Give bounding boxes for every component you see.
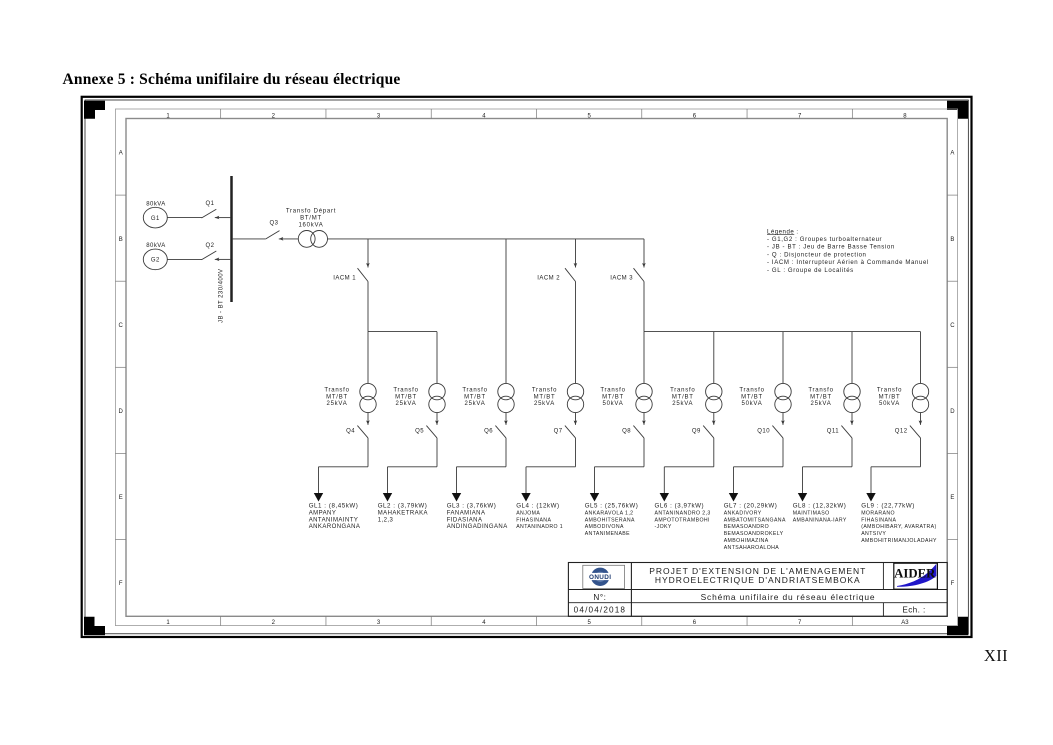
svg-text:B: B [950, 237, 954, 243]
svg-text:AMBANINANA-IARY: AMBANINANA-IARY [793, 517, 847, 523]
svg-text:Transfo: Transfo [808, 388, 833, 394]
svg-text:GL6 : (3,97kW): GL6 : (3,97kW) [655, 503, 705, 510]
svg-text:FIHASINANA: FIHASINANA [516, 517, 551, 523]
svg-text:IACM 2: IACM 2 [537, 275, 560, 281]
svg-text:MAHAKETRAKA: MAHAKETRAKA [378, 510, 428, 516]
svg-text:Transfo: Transfo [324, 388, 349, 394]
svg-text:25kVA: 25kVA [396, 401, 417, 407]
svg-text:F: F [951, 581, 955, 587]
svg-text:Q9: Q9 [692, 428, 701, 434]
svg-text:50kVA: 50kVA [879, 401, 900, 407]
svg-text:Q1: Q1 [206, 201, 215, 207]
svg-text:ANDINGADINGANA: ANDINGADINGANA [447, 524, 508, 530]
svg-text:ANKARAVOLA 1,2: ANKARAVOLA 1,2 [585, 510, 634, 516]
svg-text:ANTANIMAINTY: ANTANIMAINTY [309, 517, 359, 523]
svg-text:MT/BT: MT/BT [395, 394, 417, 400]
svg-text:ANTANINADRO 1: ANTANINADRO 1 [516, 524, 563, 530]
svg-text:BEMASOANDRO: BEMASOANDRO [724, 524, 769, 530]
svg-text:MT/BT: MT/BT [741, 394, 763, 400]
svg-text:25kVA: 25kVA [465, 401, 486, 407]
svg-text:ANKADIVORY: ANKADIVORY [724, 510, 762, 516]
svg-text:- IACM : Interrupteur Aérien à: - IACM : Interrupteur Aérien à Commande … [767, 260, 929, 266]
svg-text:MT/BT: MT/BT [672, 394, 694, 400]
svg-text:Annexe 5 : Schéma unifilaire d: Annexe 5 : Schéma unifilaire du réseau é… [63, 71, 401, 88]
svg-text:AMBOHITRIMANJOLADAHY: AMBOHITRIMANJOLADAHY [861, 538, 937, 544]
svg-text:Q11: Q11 [827, 428, 839, 434]
svg-text:Schéma unifilaire du réseau él: Schéma unifilaire du réseau électrique [701, 592, 876, 602]
svg-text:GL1 : (8,45kW): GL1 : (8,45kW) [309, 503, 359, 510]
svg-text:G2: G2 [151, 258, 160, 264]
svg-text:80kVA: 80kVA [146, 201, 165, 207]
svg-text:ANTSIVY: ANTSIVY [861, 531, 886, 537]
svg-text:MT/BT: MT/BT [810, 394, 832, 400]
svg-text:Q2: Q2 [206, 243, 215, 249]
svg-text:Transfo: Transfo [600, 388, 625, 394]
svg-text:Transfo Départ: Transfo Départ [286, 209, 336, 215]
svg-text:FIHASINANA: FIHASINANA [861, 517, 896, 523]
svg-text:ANTANINANDRO 2,3: ANTANINANDRO 2,3 [655, 510, 711, 516]
svg-text:MT/BT: MT/BT [879, 394, 901, 400]
svg-text:Légende :: Légende : [767, 228, 799, 235]
svg-text:Ech. :: Ech. : [902, 606, 925, 615]
svg-text:Transfo: Transfo [462, 388, 487, 394]
svg-text:IACM 1: IACM 1 [333, 275, 356, 281]
svg-text:- G1,G2 : Groupes turboalterna: - G1,G2 : Groupes turboalternateur [767, 237, 882, 243]
svg-text:Transfo: Transfo [393, 388, 418, 394]
svg-text:MT/BT: MT/BT [464, 394, 486, 400]
svg-text:BT/MT: BT/MT [300, 216, 322, 222]
svg-text:AMPANY: AMPANY [309, 510, 337, 516]
svg-text:FANAMIANA: FANAMIANA [447, 510, 486, 516]
svg-text:IACM 3: IACM 3 [610, 275, 633, 281]
svg-text:- Q : Disjoncteur de protectio: - Q : Disjoncteur de protection [767, 252, 867, 258]
svg-text:- JB - BT : Jeu de Barre Basse: - JB - BT : Jeu de Barre Basse Tension [767, 245, 895, 251]
svg-text:D: D [119, 409, 124, 415]
svg-text:C: C [119, 323, 124, 329]
svg-text:N°:: N°: [593, 593, 606, 602]
svg-text:GL8 : (12,32kW): GL8 : (12,32kW) [793, 503, 847, 510]
svg-text:Q4: Q4 [346, 428, 355, 434]
svg-text:AMBATOMITSANGANA: AMBATOMITSANGANA [724, 517, 786, 523]
svg-text:50kVA: 50kVA [742, 401, 763, 407]
svg-text:25kVA: 25kVA [327, 401, 348, 407]
svg-text:Q12: Q12 [895, 428, 908, 434]
svg-text:50kVA: 50kVA [603, 401, 624, 407]
svg-text:A3: A3 [901, 620, 909, 626]
svg-text:Q7: Q7 [554, 428, 563, 434]
svg-text:(AMBOHIBARY, AVARATRA): (AMBOHIBARY, AVARATRA) [861, 524, 936, 530]
svg-text:B: B [119, 237, 123, 243]
svg-text:HYDROELECTRIQUE D'ANDRIATSEMBO: HYDROELECTRIQUE D'ANDRIATSEMBOKA [655, 575, 861, 585]
svg-text:25kVA: 25kVA [534, 401, 555, 407]
svg-text:MAINTIMASO: MAINTIMASO [793, 510, 830, 516]
svg-text:G1: G1 [151, 216, 160, 222]
svg-text:C: C [950, 323, 955, 329]
svg-text:BEMASOANDROKELY: BEMASOANDROKELY [724, 531, 784, 537]
svg-text:GL7 : (20,29kW): GL7 : (20,29kW) [724, 503, 778, 510]
svg-text:ANJOMA: ANJOMA [516, 510, 540, 516]
svg-text:E: E [119, 495, 123, 501]
svg-text:ANTANIMENABE: ANTANIMENABE [585, 531, 630, 537]
svg-text:AMPOTOTRAMBOHI: AMPOTOTRAMBOHI [655, 517, 710, 523]
svg-text:25kVA: 25kVA [811, 401, 832, 407]
svg-text:04/04/2018: 04/04/2018 [574, 606, 626, 615]
svg-text:GL3 : (3,76kW): GL3 : (3,76kW) [447, 503, 497, 510]
svg-text:MT/BT: MT/BT [326, 394, 348, 400]
svg-text:GL5 : (25,76kW): GL5 : (25,76kW) [585, 503, 639, 510]
svg-text:AMBOHITSERANA: AMBOHITSERANA [585, 517, 635, 523]
svg-text:Q8: Q8 [622, 428, 631, 434]
svg-text:A: A [950, 151, 954, 157]
svg-text:Q3: Q3 [270, 221, 279, 227]
svg-text:Transfo: Transfo [670, 388, 695, 394]
svg-text:GL4 : (12kW): GL4 : (12kW) [516, 503, 559, 510]
svg-text:GL2 : (3,79kW): GL2 : (3,79kW) [378, 503, 428, 510]
svg-text:Q6: Q6 [484, 428, 493, 434]
svg-text:Q5: Q5 [415, 428, 424, 434]
svg-text:AMBOHIMAZINA: AMBOHIMAZINA [724, 538, 769, 544]
svg-text:F: F [119, 581, 123, 587]
svg-text:AMBODIVONA: AMBODIVONA [585, 524, 624, 530]
svg-text:D: D [950, 409, 955, 415]
svg-text:80kVA: 80kVA [146, 243, 165, 249]
svg-text:Transfo: Transfo [739, 388, 764, 394]
svg-text:E: E [950, 495, 954, 501]
svg-text:MT/BT: MT/BT [602, 394, 624, 400]
svg-text:JB - BT 230/400V: JB - BT 230/400V [218, 269, 224, 323]
svg-text:-JOKY: -JOKY [655, 524, 672, 530]
svg-text:- GL : Groupe de Localités: - GL : Groupe de Localités [767, 268, 854, 274]
svg-text:FIDASIANA: FIDASIANA [447, 517, 483, 523]
svg-text:25kVA: 25kVA [672, 401, 693, 407]
svg-text:ANKARONGANA: ANKARONGANA [309, 524, 361, 530]
svg-text:Transfo: Transfo [532, 388, 557, 394]
svg-text:A: A [119, 151, 123, 157]
svg-text:MORARANO: MORARANO [861, 510, 895, 516]
svg-text:ANTSAHAROALOHA: ANTSAHAROALOHA [724, 545, 780, 551]
svg-text:MT/BT: MT/BT [534, 394, 556, 400]
svg-text:GL9 : (22,77kW): GL9 : (22,77kW) [861, 503, 915, 510]
svg-text:1,2,3: 1,2,3 [378, 517, 394, 523]
svg-text:160kVA: 160kVA [298, 223, 323, 229]
svg-text:Transfo: Transfo [877, 388, 902, 394]
svg-text:Q10: Q10 [757, 428, 770, 434]
svg-text:ONUDI: ONUDI [589, 574, 611, 581]
svg-text:XII: XII [984, 646, 1008, 665]
svg-text:AIDER: AIDER [894, 567, 936, 581]
